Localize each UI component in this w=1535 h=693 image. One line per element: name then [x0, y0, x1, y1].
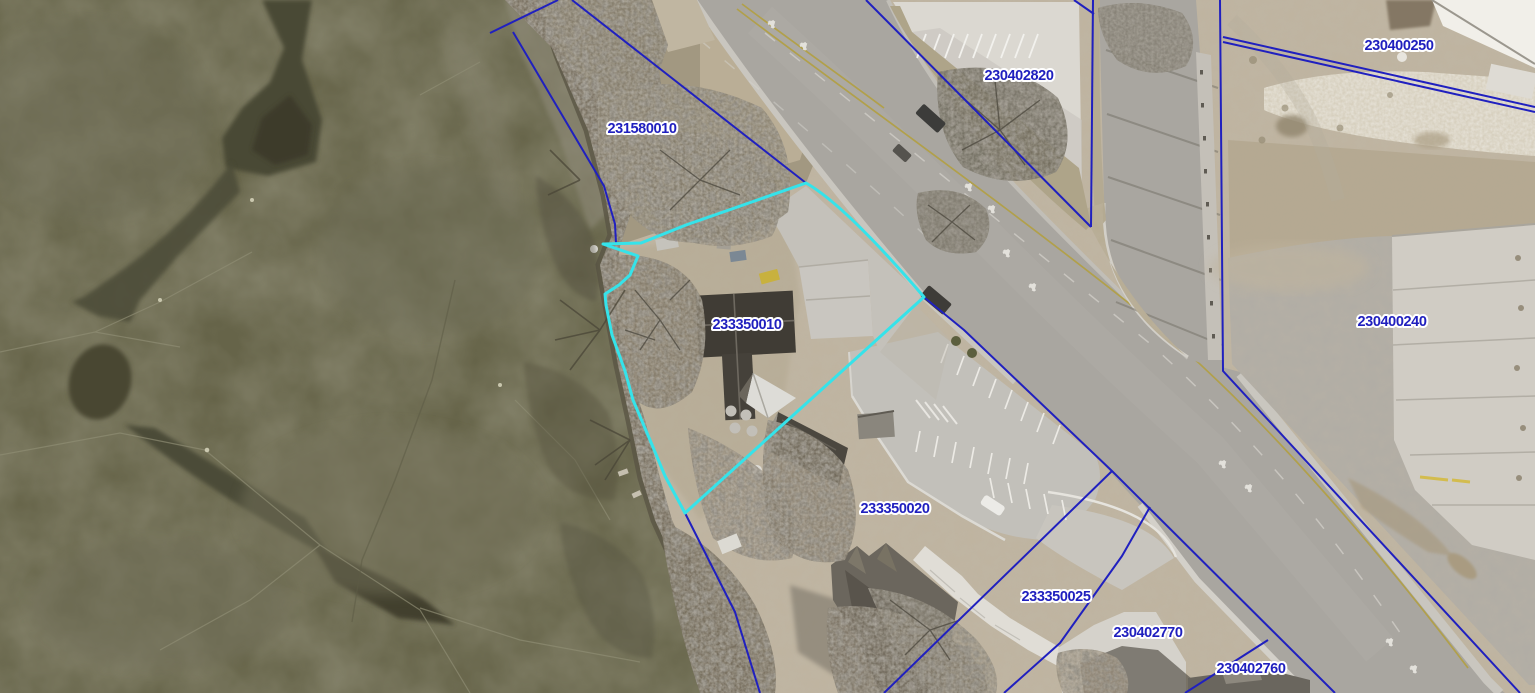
svg-text:230402760: 230402760 — [1217, 661, 1286, 677]
svg-text:230402770: 230402770 — [1114, 625, 1183, 641]
svg-text:230400250: 230400250 — [1365, 38, 1434, 54]
svg-text:233350010: 233350010 — [713, 317, 782, 333]
svg-text:230402820: 230402820 — [985, 68, 1054, 84]
svg-text:233350020: 233350020 — [861, 501, 930, 517]
svg-text:230400240: 230400240 — [1358, 314, 1427, 330]
svg-text:231580010: 231580010 — [608, 121, 677, 137]
svg-text:233350025: 233350025 — [1022, 589, 1091, 605]
